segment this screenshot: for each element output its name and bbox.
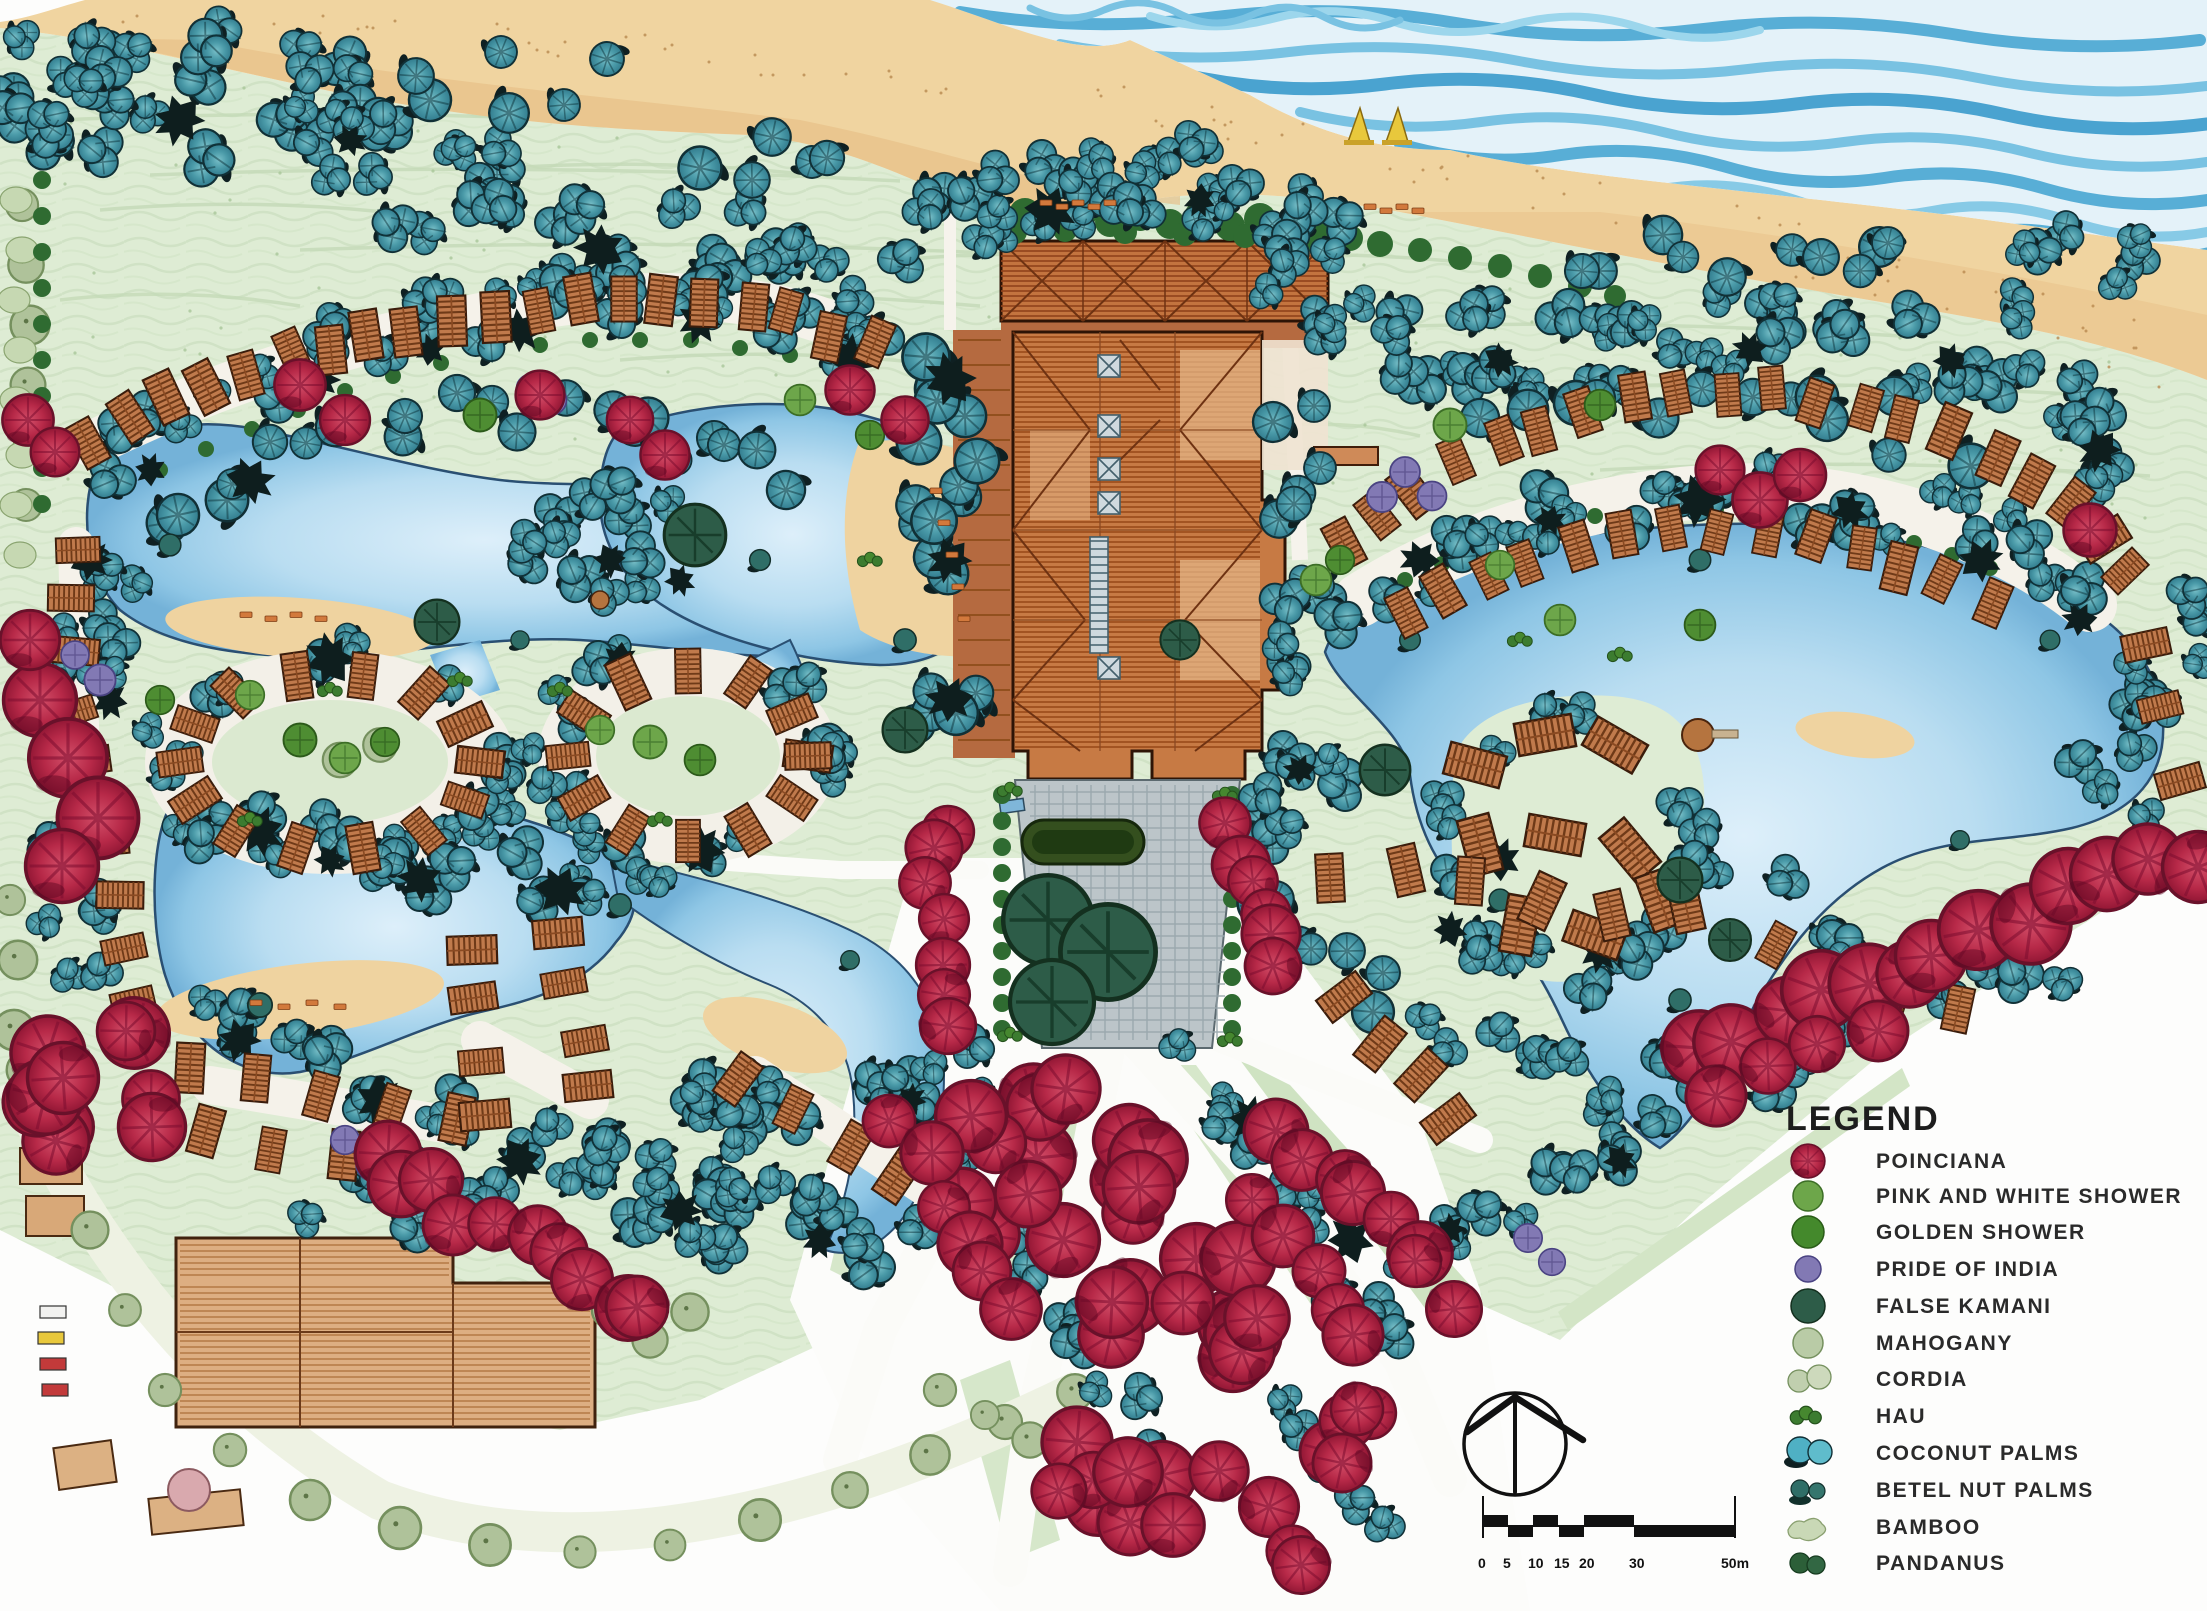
- svg-text:GOLDEN SHOWER: GOLDEN SHOWER: [1876, 1221, 2086, 1244]
- svg-text:MAHOGANY: MAHOGANY: [1876, 1332, 2013, 1355]
- svg-text:POINCIANA: POINCIANA: [1876, 1150, 2007, 1173]
- svg-text:PRIDE OF INDIA: PRIDE OF INDIA: [1876, 1258, 2059, 1281]
- svg-text:5: 5: [1503, 1555, 1511, 1571]
- svg-text:BAMBOO: BAMBOO: [1876, 1516, 1981, 1539]
- svg-text:LEGEND: LEGEND: [1786, 1100, 1940, 1138]
- svg-text:COCONUT PALMS: COCONUT PALMS: [1876, 1442, 2079, 1465]
- svg-text:0: 0: [1478, 1555, 1486, 1571]
- svg-text:10: 10: [1528, 1555, 1544, 1571]
- svg-text:BETEL NUT PALMS: BETEL NUT PALMS: [1876, 1479, 2094, 1502]
- svg-text:50m: 50m: [1721, 1555, 1749, 1571]
- svg-text:30: 30: [1629, 1555, 1645, 1571]
- svg-text:HAU: HAU: [1876, 1405, 1926, 1428]
- svg-text:FALSE KAMANI: FALSE KAMANI: [1876, 1295, 2052, 1318]
- svg-text:PANDANUS: PANDANUS: [1876, 1552, 2005, 1575]
- svg-text:CORDIA: CORDIA: [1876, 1368, 1968, 1391]
- svg-text:20: 20: [1579, 1555, 1595, 1571]
- svg-text:PINK AND WHITE SHOWER: PINK AND WHITE SHOWER: [1876, 1185, 2182, 1208]
- svg-text:15: 15: [1554, 1555, 1570, 1571]
